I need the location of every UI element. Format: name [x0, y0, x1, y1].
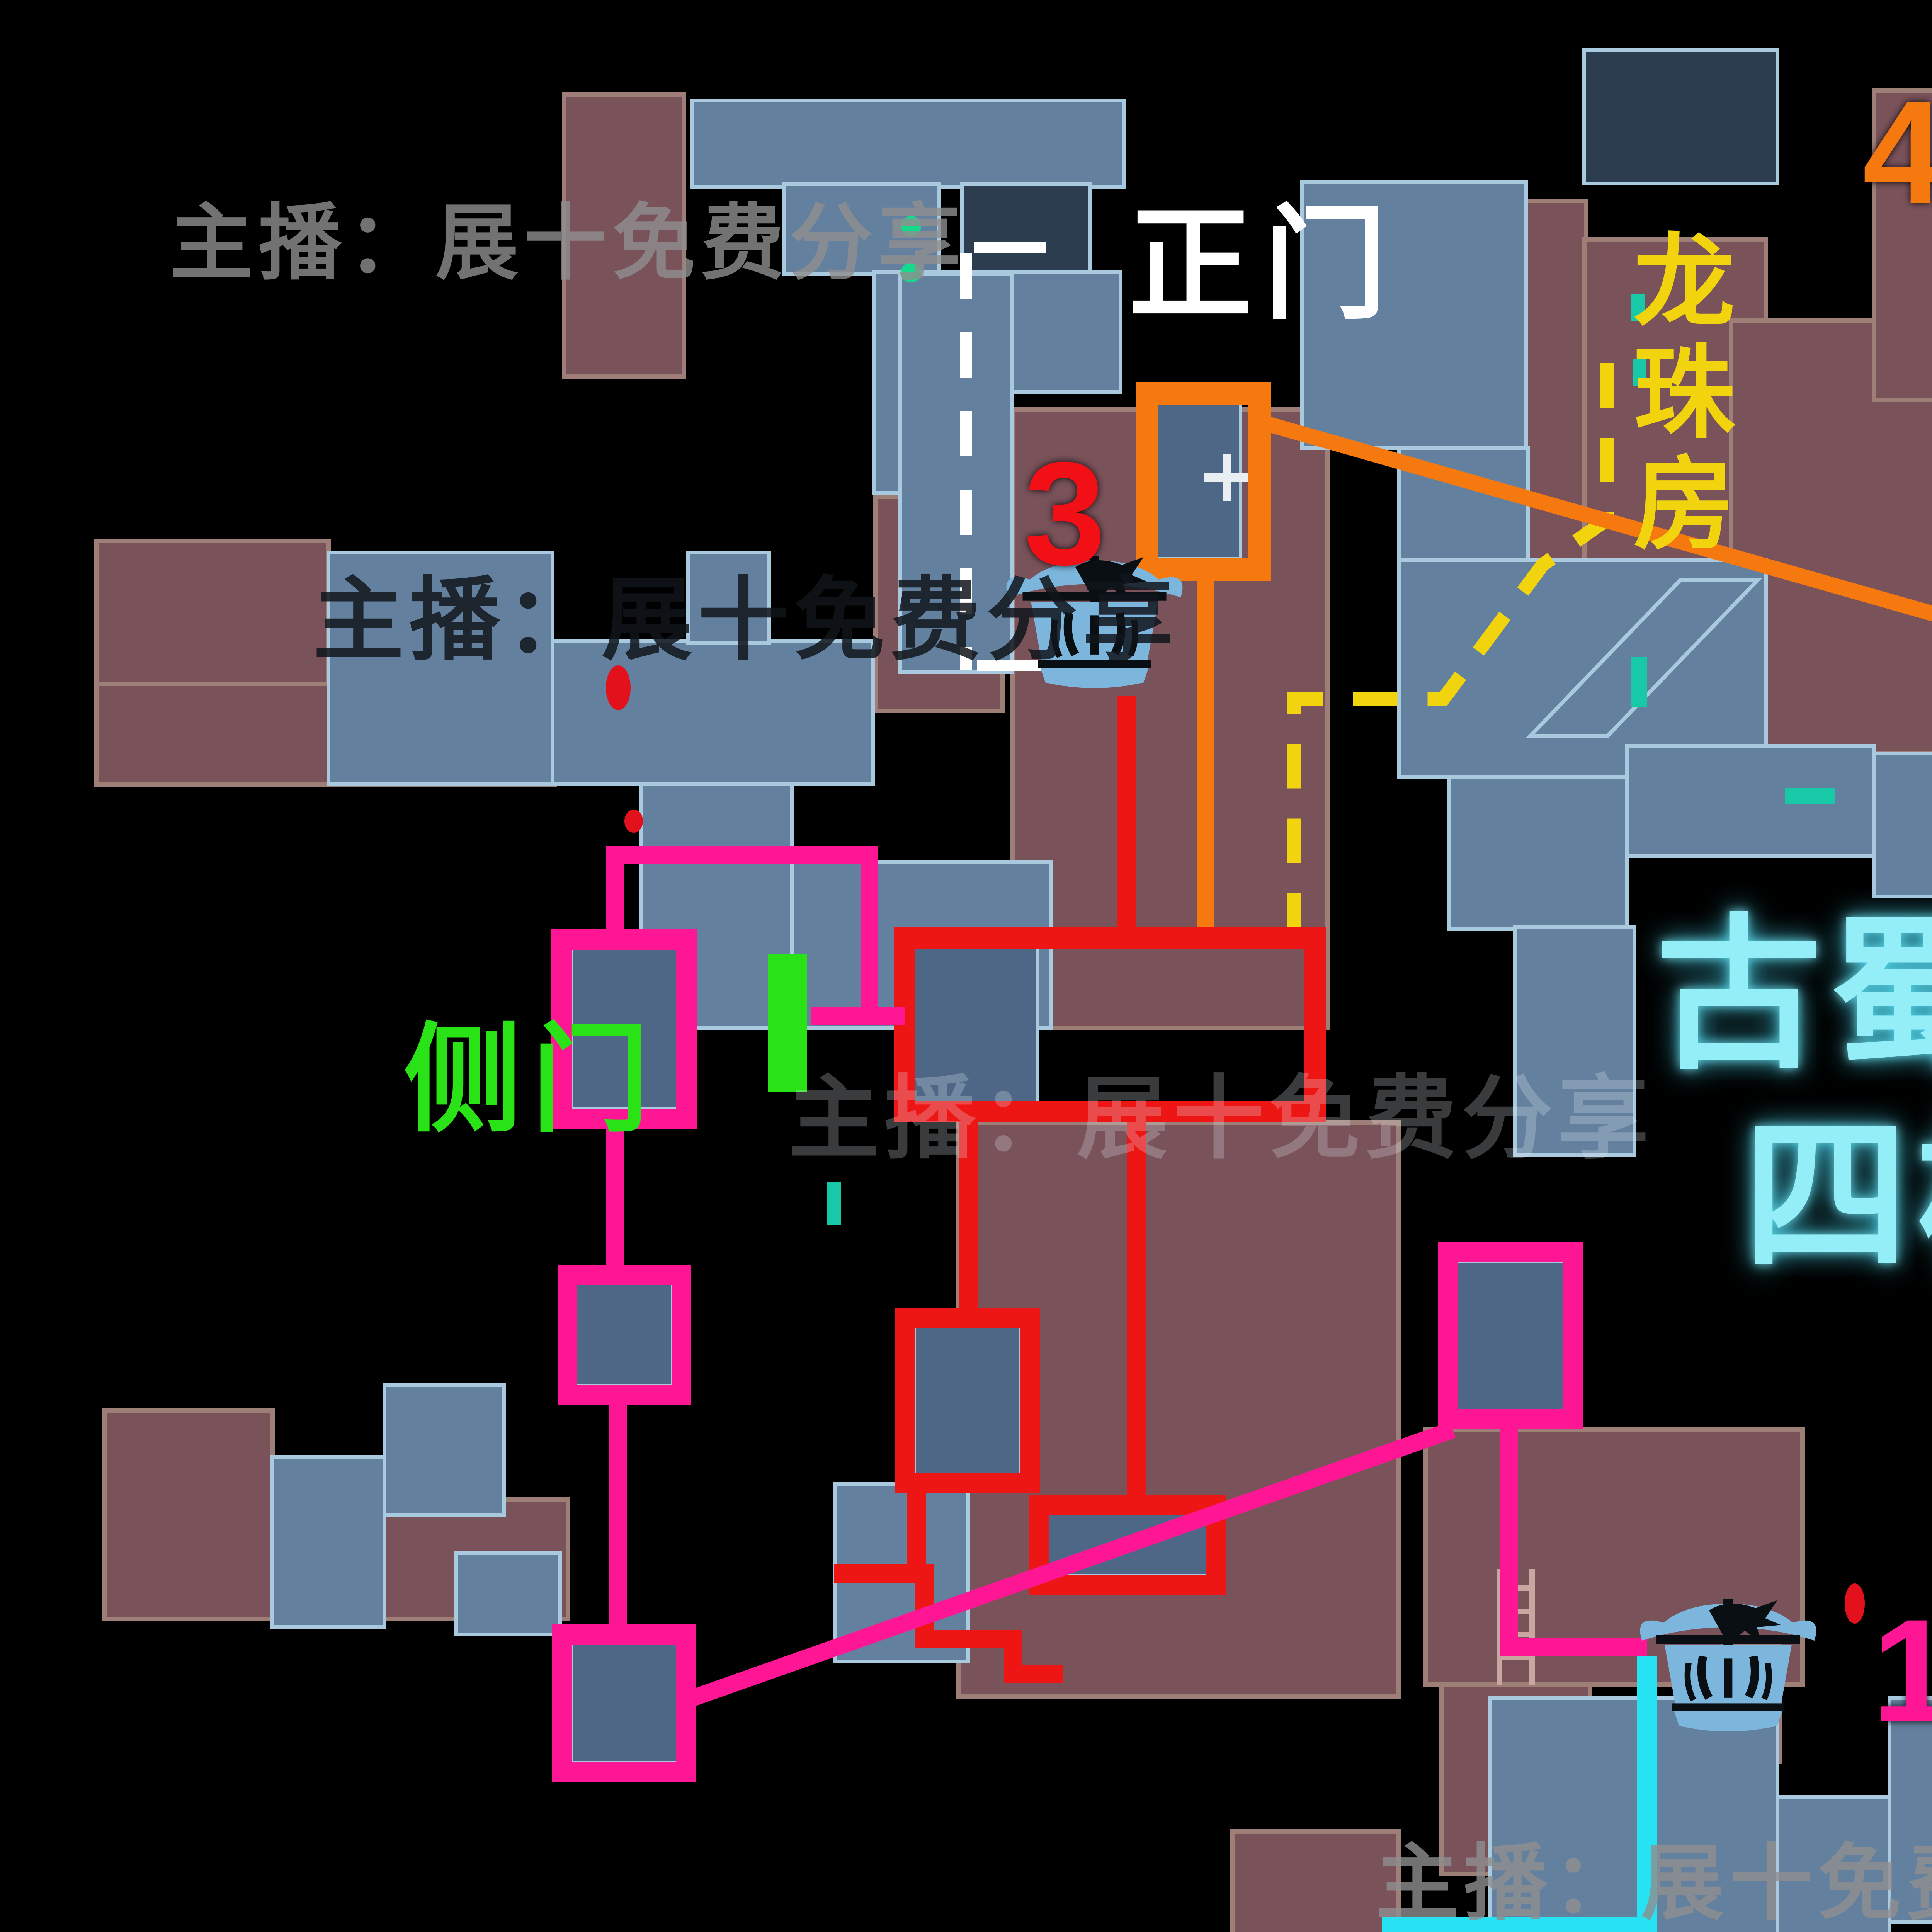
building-block — [104, 1410, 272, 1619]
red-route-room-2 — [914, 1326, 1020, 1475]
corridor — [1874, 753, 1932, 896]
dragon-pearl-room-label: 龙珠房 — [1617, 228, 1733, 562]
corridor — [962, 184, 1090, 277]
red-item — [1845, 1583, 1865, 1624]
watermark-center: 主播：展十免费分享 — [788, 1066, 1654, 1171]
coffin-1-number: 1 — [1872, 1586, 1932, 1755]
map-title-line2: 四棺图 — [1627, 1101, 1932, 1293]
teal-mark — [827, 1182, 841, 1225]
corridor — [1627, 746, 1874, 856]
side-route-room-2 — [576, 1284, 672, 1386]
corridor — [272, 1457, 384, 1627]
corridor — [1449, 777, 1627, 929]
game-map: 主播：展十免费分享 主播：展十免费分享 主播：展十免费分享 主播：展十免费分享 … — [0, 0, 1932, 1932]
teal-mark — [1785, 788, 1835, 804]
teal-mark — [1631, 657, 1647, 707]
red-item — [624, 810, 643, 833]
corridor — [456, 1553, 560, 1634]
coffin-2-number: 2 — [1209, 1913, 1291, 1932]
corridor — [1584, 50, 1777, 184]
map-title-line1: 古蜀困难 — [1627, 900, 1932, 1092]
watermark-top-left: 主播：展十免费分享 — [170, 195, 966, 291]
side-route-room-3 — [571, 1643, 677, 1763]
side-route-room-4 — [1457, 1262, 1565, 1410]
corridor — [384, 1385, 504, 1515]
coffin-3-number: 3 — [1024, 429, 1105, 598]
coffin-4-number: 4 — [1862, 68, 1932, 236]
main-gate-label: 正门 — [1128, 193, 1399, 335]
watermark-bottom-right: 主播：展十免费分享 — [1376, 1835, 1932, 1931]
corridor — [692, 100, 1124, 187]
side-door-label: 侧门 — [404, 1012, 659, 1148]
